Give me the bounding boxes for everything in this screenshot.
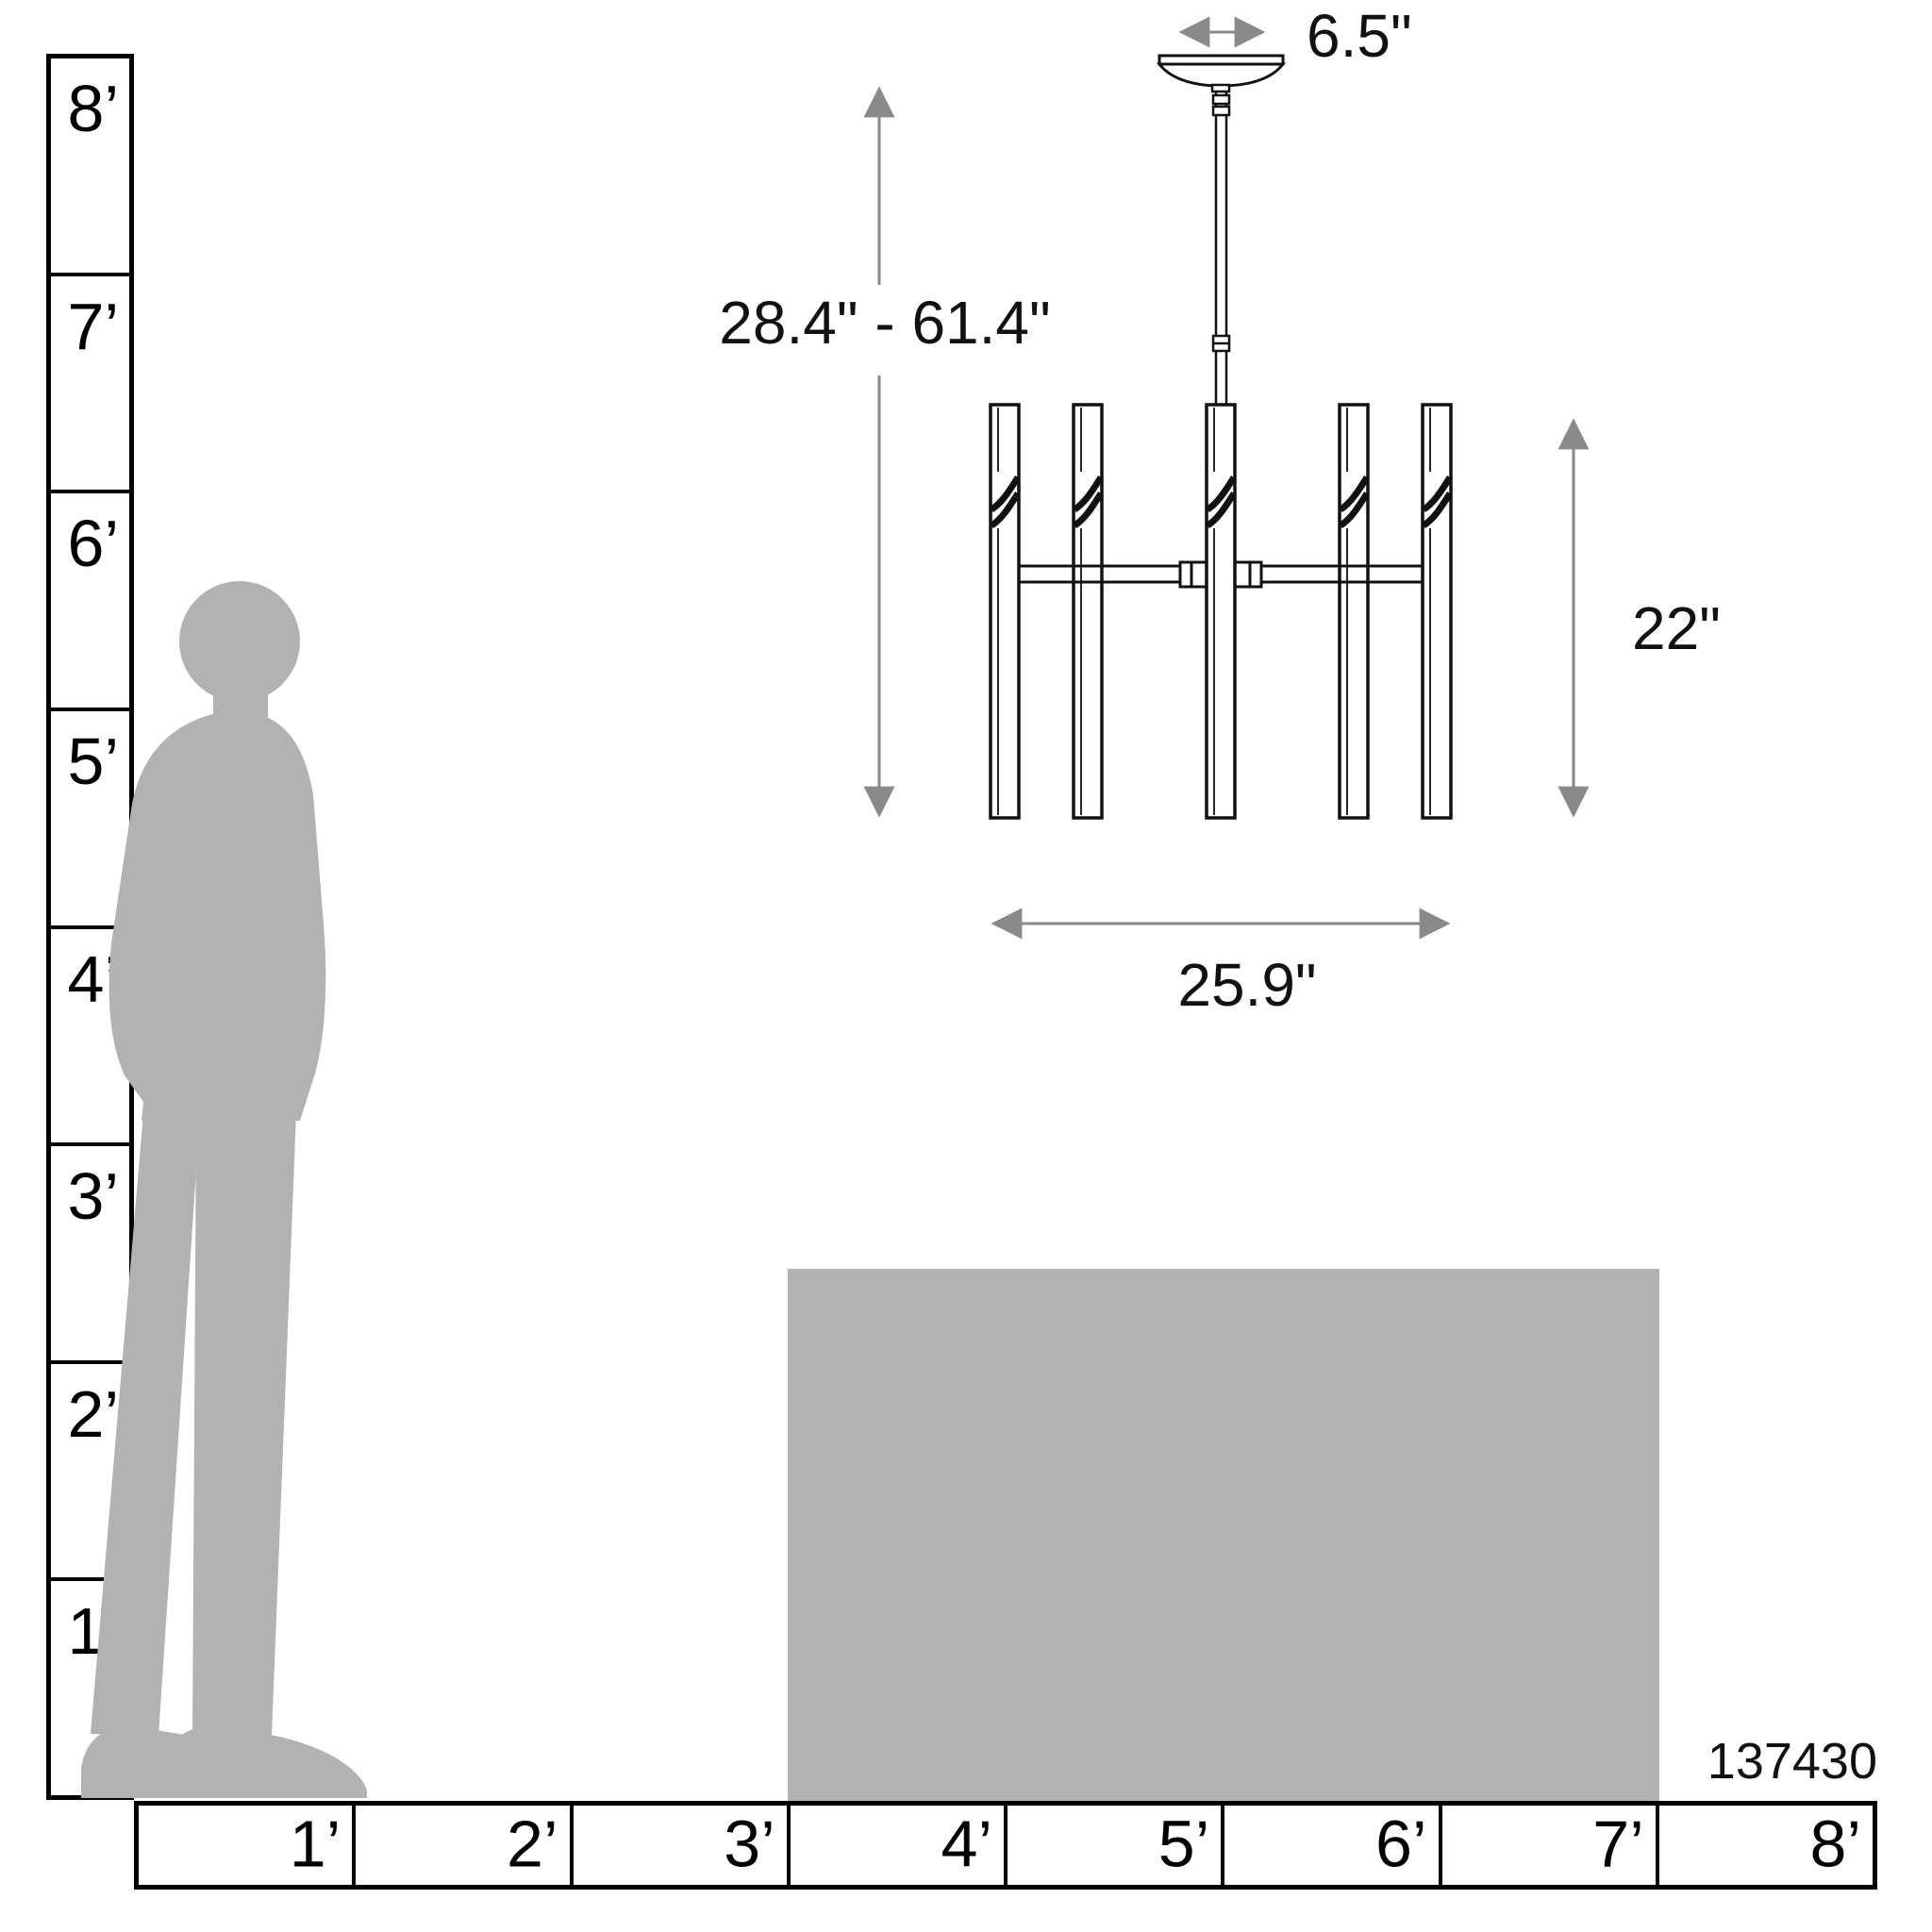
- horizontal-ruler-label: 6’: [1375, 1811, 1426, 1877]
- horizontal-ruler-cell: 4’: [787, 1806, 1004, 1885]
- horizontal-ruler-cell: 3’: [570, 1806, 787, 1885]
- horizontal-ruler-cell: 2’: [352, 1806, 569, 1885]
- vertical-ruler-label: 2’: [68, 1381, 119, 1447]
- vertical-ruler: 8’ 7’ 6’ 5’ 4’ 3’ 2’ 1’: [46, 54, 134, 1800]
- canopy-width-label: 6.5": [1307, 6, 1412, 66]
- vertical-ruler-cell: 1’: [51, 1577, 129, 1795]
- product-number: 137430: [1707, 1736, 1877, 1787]
- vertical-ruler-label: 6’: [68, 510, 119, 576]
- chandelier-arm: [1019, 562, 1423, 587]
- vertical-ruler-label: 7’: [68, 293, 119, 359]
- horizontal-ruler: 1’ 2’ 3’ 4’ 5’ 6’ 7’ 8’: [134, 1801, 1877, 1890]
- horizontal-ruler-cell: 7’: [1439, 1806, 1656, 1885]
- horizontal-ruler-cell: 6’: [1221, 1806, 1438, 1885]
- chandelier-center-bar: [1207, 405, 1235, 818]
- vertical-ruler-label: 3’: [68, 1163, 119, 1229]
- chandelier-bars: [991, 405, 1451, 818]
- vertical-ruler-cell: 5’: [51, 708, 129, 925]
- horizontal-ruler-label: 1’: [290, 1811, 341, 1877]
- horizontal-ruler-label: 4’: [941, 1811, 992, 1877]
- horizontal-ruler-label: 2’: [507, 1811, 558, 1877]
- horizontal-ruler-cell: 1’: [139, 1806, 352, 1885]
- vertical-ruler-cell: 2’: [51, 1360, 129, 1578]
- vertical-ruler-label: 5’: [68, 728, 119, 794]
- horizontal-ruler-label: 7’: [1592, 1811, 1643, 1877]
- fixture-height-label: 22": [1632, 598, 1721, 658]
- horizontal-ruler-label: 5’: [1158, 1811, 1209, 1877]
- fixture-width-label: 25.9": [1177, 955, 1316, 1015]
- hanging-height-label: 28.4" - 61.4": [719, 292, 1050, 353]
- chandelier-canopy: [1159, 56, 1283, 92]
- chandelier-stem: [1213, 89, 1229, 405]
- dimension-diagram: 8’ 7’ 6’ 5’ 4’ 3’ 2’ 1’ 1’ 2’ 3’ 4’ 5’ 6…: [0, 0, 1932, 1932]
- vertical-ruler-cell: 7’: [51, 273, 129, 491]
- vertical-ruler-cell: 3’: [51, 1142, 129, 1360]
- horizontal-ruler-cell: 5’: [1004, 1806, 1221, 1885]
- horizontal-ruler-label: 8’: [1810, 1811, 1861, 1877]
- vertical-ruler-label: 1’: [68, 1598, 119, 1664]
- vertical-ruler-cell: 8’: [51, 58, 129, 273]
- chandelier-drawing: [991, 56, 1451, 818]
- vertical-ruler-cell: 6’: [51, 490, 129, 708]
- horizontal-ruler-label: 3’: [724, 1811, 774, 1877]
- vertical-ruler-cell: 4’: [51, 925, 129, 1143]
- vertical-ruler-label: 4’: [68, 946, 119, 1012]
- vertical-ruler-label: 8’: [68, 75, 119, 142]
- horizontal-ruler-cell: 8’: [1656, 1806, 1873, 1885]
- table-shape: [788, 1269, 1659, 1801]
